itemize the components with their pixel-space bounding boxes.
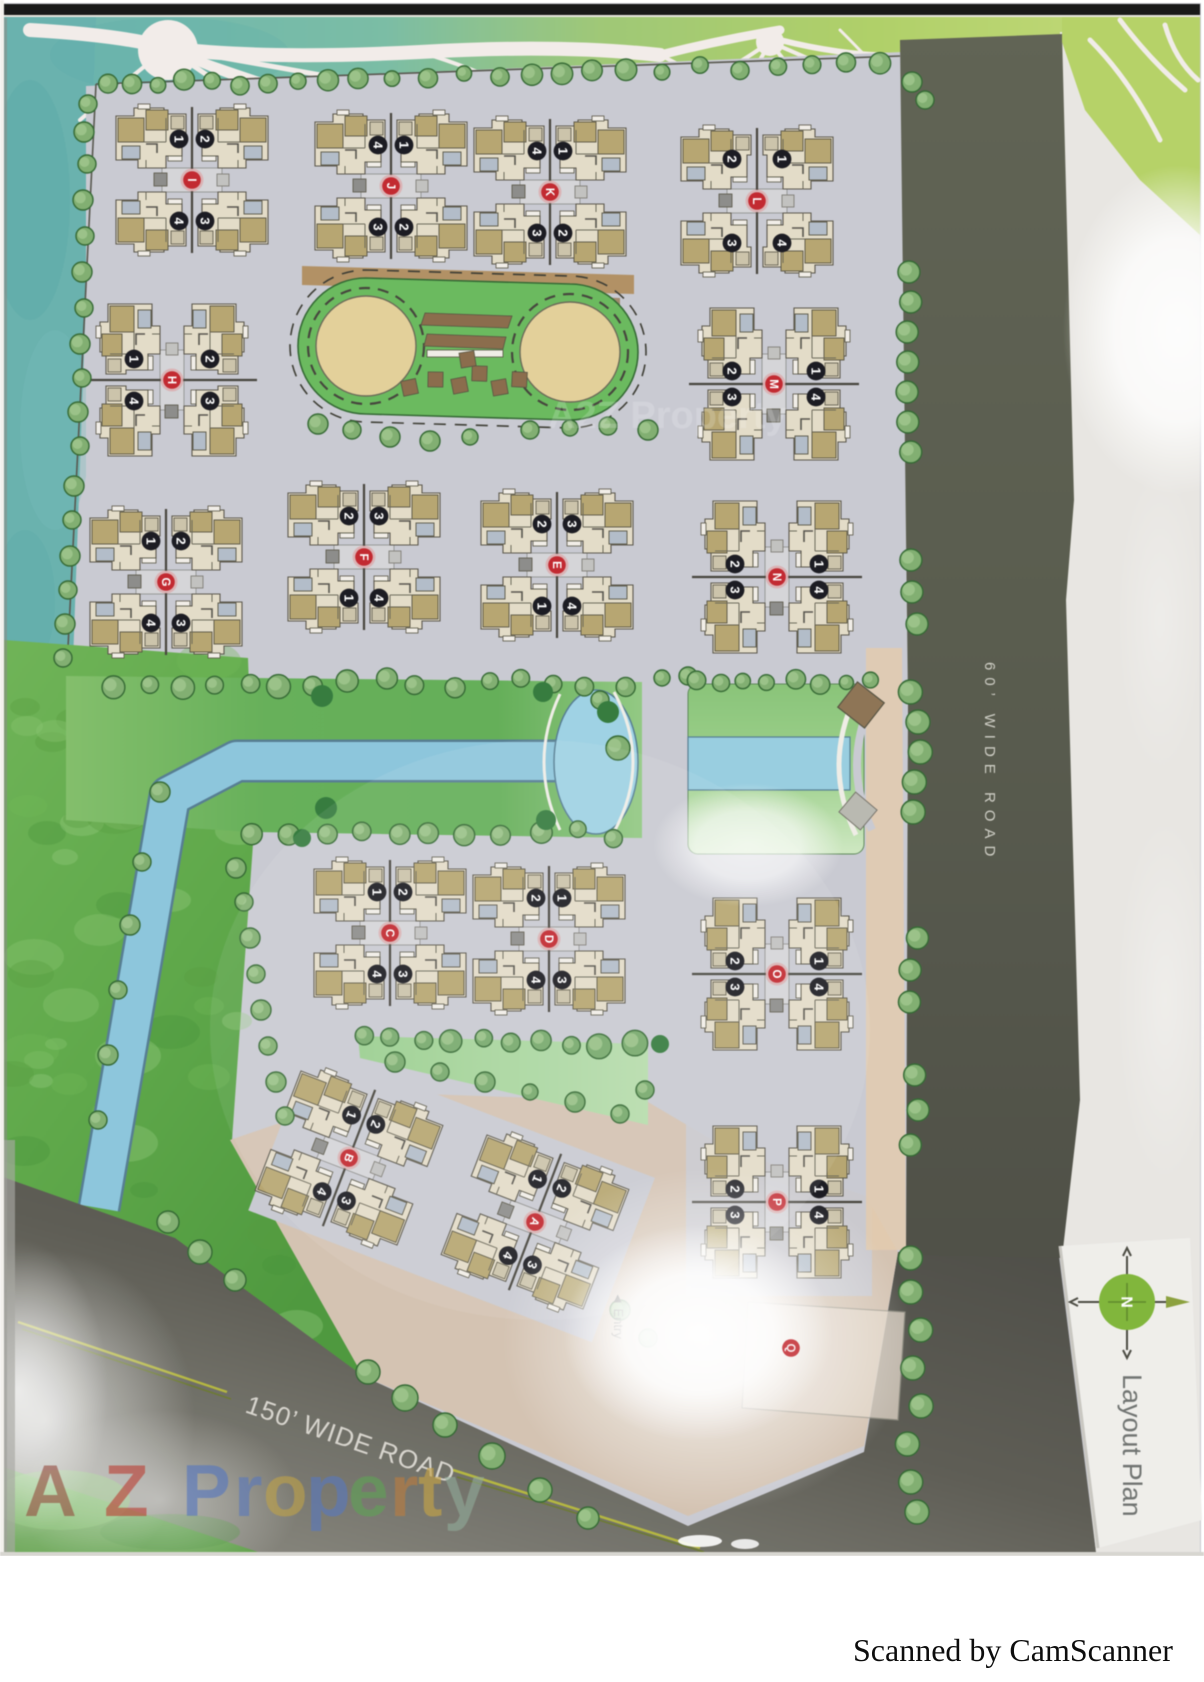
svg-text:2: 2 <box>396 223 411 230</box>
svg-text:1: 1 <box>811 560 826 567</box>
svg-text:N: N <box>770 573 782 581</box>
svg-text:2: 2 <box>727 560 742 567</box>
svg-text:2: 2 <box>202 355 217 362</box>
svg-text:2: 2 <box>724 367 739 374</box>
svg-text:3: 3 <box>370 223 385 230</box>
svg-text:3: 3 <box>727 586 742 593</box>
svg-text:K: K <box>543 188 555 197</box>
svg-text:4: 4 <box>126 397 141 405</box>
svg-text:1: 1 <box>341 594 356 601</box>
svg-text:y: y <box>444 1451 485 1532</box>
svg-text:4: 4 <box>774 239 789 247</box>
svg-text:3: 3 <box>724 239 739 246</box>
svg-text:4: 4 <box>370 141 385 149</box>
svg-text:3: 3 <box>197 217 212 224</box>
svg-text:A: A <box>24 1451 77 1532</box>
svg-text:60’ WIDE ROAD: 60’ WIDE ROAD <box>981 662 998 863</box>
svg-text:P: P <box>182 1451 231 1532</box>
svg-text:F: F <box>357 553 369 560</box>
svg-text:1: 1 <box>808 367 823 374</box>
svg-text:2: 2 <box>534 520 549 527</box>
svg-text:r: r <box>390 1451 418 1532</box>
svg-text:r: r <box>234 1451 262 1532</box>
svg-text:3: 3 <box>202 397 217 404</box>
svg-text:4: 4 <box>811 586 826 594</box>
svg-text:2: 2 <box>341 512 356 519</box>
svg-text:Q: Q <box>784 1344 796 1353</box>
svg-text:4: 4 <box>171 217 186 225</box>
svg-text:E: E <box>550 561 562 569</box>
svg-text:2: 2 <box>173 537 188 544</box>
svg-text:H: H <box>165 376 177 384</box>
svg-text:t: t <box>418 1451 442 1532</box>
svg-text:2: 2 <box>197 135 212 142</box>
svg-text:Layout Plan: Layout Plan <box>1117 1374 1147 1517</box>
svg-text:A2Z Property: A2Z Property <box>548 395 787 437</box>
svg-text:1: 1 <box>143 537 158 544</box>
svg-text:4: 4 <box>143 619 158 627</box>
svg-text:4: 4 <box>371 594 386 602</box>
svg-text:1: 1 <box>126 355 141 362</box>
svg-text:I: I <box>185 178 197 181</box>
svg-text:1: 1 <box>396 141 411 148</box>
svg-text:J: J <box>384 183 396 189</box>
svg-text:4: 4 <box>529 147 544 155</box>
svg-text:L: L <box>750 197 762 204</box>
svg-text:3: 3 <box>529 229 544 236</box>
svg-text:o: o <box>263 1451 308 1532</box>
svg-text:Z: Z <box>104 1451 149 1532</box>
svg-text:3: 3 <box>564 520 579 527</box>
svg-text:2: 2 <box>724 155 739 162</box>
svg-text:G: G <box>159 578 171 587</box>
svg-text:1: 1 <box>534 602 549 609</box>
svg-text:p: p <box>306 1451 351 1532</box>
svg-text:1: 1 <box>555 147 570 154</box>
svg-text:4: 4 <box>808 393 823 401</box>
svg-text:3: 3 <box>173 619 188 626</box>
svg-text:4: 4 <box>564 602 579 610</box>
svg-text:2: 2 <box>555 229 570 236</box>
svg-text:1: 1 <box>774 155 789 162</box>
svg-text:N: N <box>1117 1296 1134 1308</box>
svg-text:3: 3 <box>371 512 386 519</box>
svg-text:M: M <box>767 379 779 389</box>
svg-text:e: e <box>348 1451 389 1532</box>
svg-text:1: 1 <box>171 135 186 142</box>
